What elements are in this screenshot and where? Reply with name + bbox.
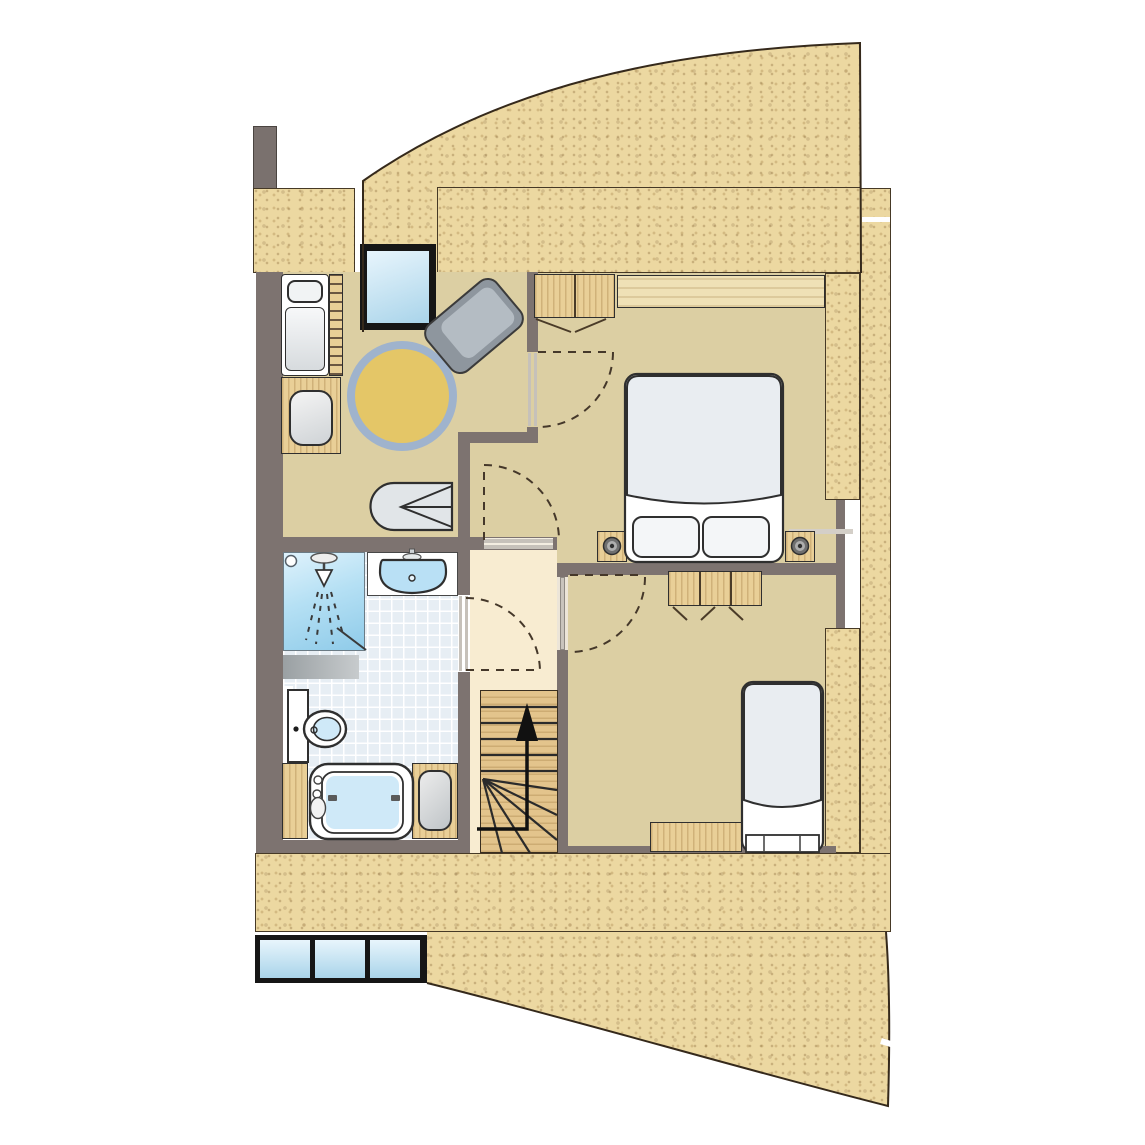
bath-mat — [283, 655, 359, 679]
wall-studio-bathroom — [283, 537, 470, 552]
wall-rack-ladder — [329, 274, 343, 376]
wall-studio-step — [458, 432, 538, 443]
staircase — [480, 690, 558, 853]
wall-left-outer — [256, 272, 283, 853]
door-jamb — [528, 353, 531, 426]
wardrobe-divider — [730, 572, 732, 605]
toilet-backing — [283, 686, 293, 764]
bedroom2-wardrobe — [668, 571, 762, 606]
pouf — [289, 390, 333, 446]
section-notch-top — [862, 217, 890, 222]
window-pane — [260, 940, 310, 978]
master-wall-closet — [617, 275, 825, 308]
daybed-pillow — [287, 280, 323, 303]
window-pane — [315, 940, 365, 978]
wardrobe-divider — [699, 572, 701, 605]
exterior-band-top — [437, 187, 861, 273]
floor-plan-canvas — [0, 0, 1145, 1145]
roof-window-glass — [367, 251, 429, 323]
exterior-column-right-outer — [860, 188, 891, 932]
second-bedroom-floor — [568, 575, 825, 853]
daybed-mattress — [285, 307, 325, 371]
chimney-stub — [253, 126, 277, 189]
shower-cabin — [283, 552, 365, 651]
master-wardrobe — [534, 274, 615, 318]
vanity-cabinet-left — [282, 763, 308, 839]
wardrobe-divider — [574, 275, 576, 317]
exterior-column-right-upper — [825, 273, 860, 500]
nightstand-left — [597, 531, 627, 562]
exterior-column-right-lower — [825, 628, 860, 853]
wall-bottom-bathroom — [256, 840, 470, 853]
exterior-band-bottom — [255, 853, 891, 932]
door-jamb — [534, 353, 537, 426]
master-nook-floor — [470, 443, 538, 537]
door-jamb — [465, 596, 468, 671]
door-jamb — [484, 539, 553, 543]
window-pane — [370, 940, 420, 978]
exterior-band-top-left — [253, 188, 355, 273]
door-leaf-bedroom2 — [560, 577, 565, 650]
stool-seat — [418, 770, 452, 831]
door-jamb — [459, 596, 462, 671]
nightstand-right — [785, 531, 815, 562]
washbasin-counter — [367, 552, 458, 596]
door-jamb — [484, 545, 553, 549]
wall-stub-right — [836, 500, 845, 628]
bedroom2-desk — [650, 822, 742, 852]
